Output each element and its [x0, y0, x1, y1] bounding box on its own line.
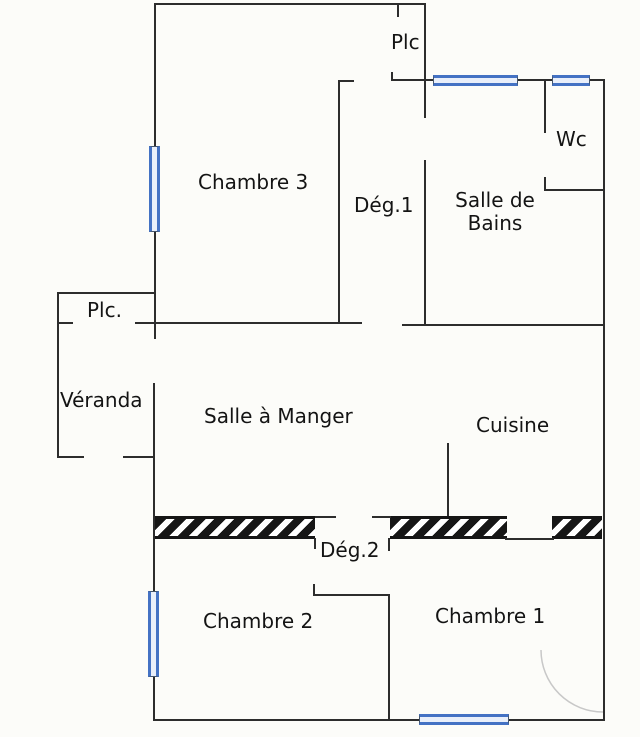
- wall-exterior-right: [603, 79, 605, 721]
- room-label-chambre3: Chambre 3: [198, 171, 308, 194]
- wall-exterior-top: [155, 3, 426, 5]
- wall-middle-right: [402, 324, 605, 326]
- hatched-wall-chambre1-left: [390, 516, 507, 539]
- wall-wc-left-upper: [544, 79, 546, 133]
- floor-plan: Plc Chambre 3 Dég.1 Salle de Bains Wc Pl…: [0, 0, 640, 737]
- wall-deg1-right-lower: [424, 160, 426, 324]
- wall-chambre-divider: [388, 594, 390, 721]
- room-label-salle-de-bains: Salle de Bains: [444, 189, 546, 235]
- wall-deg2-jamb-left: [314, 538, 316, 549]
- wall-deg1-right-upper: [424, 3, 426, 118]
- wall-veranda-bottom-left: [57, 456, 84, 458]
- wall-plc-left-stub: [58, 322, 73, 324]
- room-label-plc-left: Plc.: [87, 299, 122, 322]
- hatched-wall-chambre2: [155, 516, 315, 539]
- room-label-salle-a-manger: Salle à Manger: [204, 405, 353, 428]
- room-label-deg2: Dég.2: [320, 539, 379, 562]
- window-chambre1: [419, 714, 509, 725]
- room-label-cuisine: Cuisine: [476, 414, 549, 437]
- hatched-wall-chambre1-right: [552, 516, 602, 539]
- wall-veranda-left: [57, 292, 59, 458]
- wall-plc-top-tick: [397, 3, 399, 17]
- wall-deg1-left: [338, 80, 340, 324]
- wall-veranda-top: [57, 292, 156, 294]
- wall-middle-left: [135, 322, 362, 324]
- wall-deg2-jamb-right: [388, 538, 390, 551]
- wall-wc-bottom: [545, 189, 605, 191]
- wall-cuisine-partition: [447, 443, 449, 518]
- window-salle-de-bains: [433, 75, 518, 86]
- wall-chambre2-top-stub: [313, 594, 390, 596]
- wall-deg2-top-stub-right: [372, 516, 391, 518]
- wall-exterior-bottom: [153, 719, 605, 721]
- room-label-deg1: Dég.1: [354, 194, 413, 217]
- door-swing-arc: [536, 645, 606, 715]
- wall-veranda-bottom-right: [123, 456, 155, 458]
- window-chambre2: [148, 591, 159, 677]
- room-label-chambre1: Chambre 1: [435, 605, 545, 628]
- room-label-plc-top: Plc: [391, 31, 420, 54]
- window-wc: [552, 75, 590, 86]
- wall-deg2-top-stub-left: [315, 516, 336, 518]
- room-label-chambre2: Chambre 2: [203, 610, 313, 633]
- room-label-wc: Wc: [556, 128, 587, 151]
- room-label-veranda: Véranda: [60, 389, 143, 412]
- wall-chambre1-door-sill: [505, 538, 554, 540]
- window-chambre3: [149, 146, 160, 232]
- wall-chambre3-corner-stub: [338, 80, 354, 82]
- wall-plc-bottom: [391, 79, 426, 81]
